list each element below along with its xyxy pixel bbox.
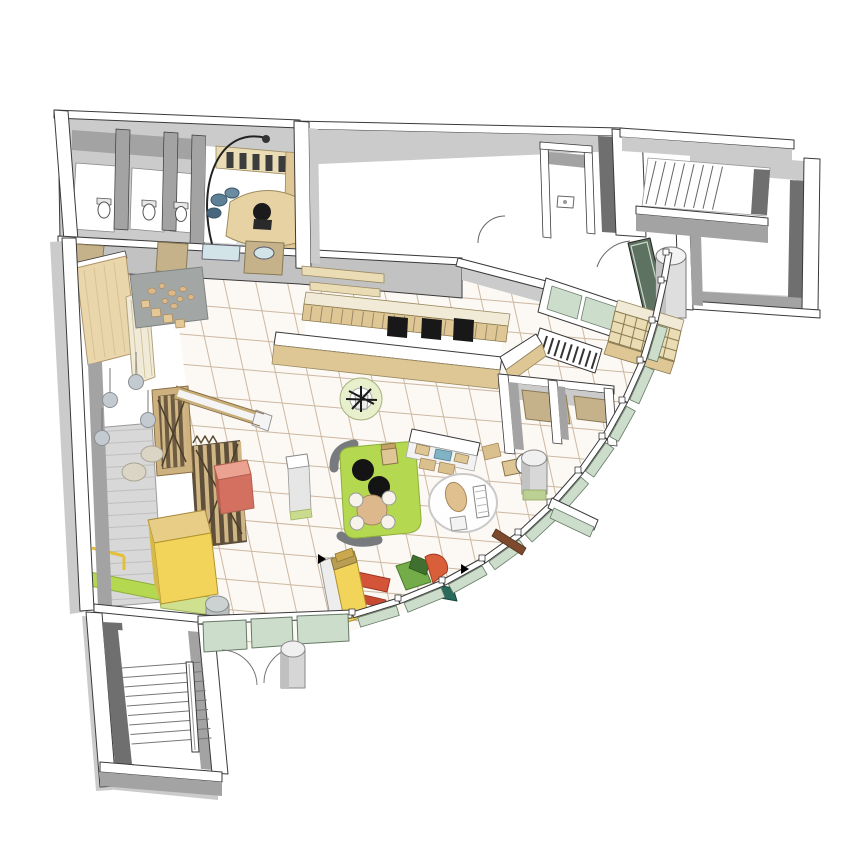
facade-column-base xyxy=(523,490,546,500)
floor-plan-svg xyxy=(0,0,851,845)
facade-post xyxy=(439,577,445,583)
entry-glass-3 xyxy=(297,614,349,644)
toilet-bowl-2 xyxy=(143,204,155,220)
facade-post xyxy=(599,433,605,439)
pink-cube-front xyxy=(218,474,254,514)
closet-door-arc xyxy=(478,216,505,243)
kids-chair-3 xyxy=(350,516,364,530)
facade-column-top xyxy=(522,450,547,466)
step-stone-4 xyxy=(175,319,185,328)
facade-post xyxy=(619,397,625,403)
step-stone-2 xyxy=(151,308,161,317)
reception-chair-3 xyxy=(453,318,474,342)
facade-post xyxy=(658,277,664,283)
mat-pouf-1 xyxy=(352,459,374,481)
kids-chair-2 xyxy=(382,491,396,505)
closet-sink-knob xyxy=(563,200,567,204)
tr-stub-face xyxy=(690,232,703,306)
pebble-4 xyxy=(180,287,187,292)
trash-bin-top xyxy=(206,596,229,612)
entry-door-arc-1 xyxy=(222,650,257,685)
closet-face xyxy=(548,152,586,168)
office-pot-2 xyxy=(225,188,239,198)
facade-post xyxy=(649,317,655,323)
step-stone-3 xyxy=(163,314,173,323)
rug-stool xyxy=(450,516,467,531)
upper-stairs-floor xyxy=(642,158,770,216)
pebble-5 xyxy=(177,297,183,302)
pebble-3 xyxy=(168,290,176,296)
office-desk-chair xyxy=(253,203,271,221)
pebble-7 xyxy=(162,299,168,304)
facade-post xyxy=(479,555,485,561)
toilet-bowl-3 xyxy=(176,207,187,222)
kids-chair-1 xyxy=(349,493,363,507)
facade-post xyxy=(575,467,581,473)
porthole-window xyxy=(254,247,274,259)
pebble-1 xyxy=(148,288,156,294)
facade-post xyxy=(349,609,355,615)
tr-right-wall xyxy=(802,158,820,310)
pendant-lamp-2 xyxy=(129,375,144,390)
floor-plan-canvas xyxy=(0,0,851,845)
office-pot-3 xyxy=(207,208,221,218)
pebble-6 xyxy=(188,295,194,300)
stall-divider-3 xyxy=(190,135,206,249)
closet-right-wall xyxy=(584,146,595,234)
upper-stairs-dark-face xyxy=(751,169,770,215)
kids-chair-4 xyxy=(381,515,395,529)
toilet-bowl-1 xyxy=(98,202,110,218)
wicker-pouf-2 xyxy=(141,446,163,462)
stall-floor-2 xyxy=(130,168,166,232)
facade-post xyxy=(395,595,401,601)
pedestal-body xyxy=(288,466,311,512)
right-door-arc xyxy=(597,241,630,267)
pendant-lamp-1 xyxy=(103,393,118,408)
reception-chair-1 xyxy=(387,316,408,338)
corridor-door-2 xyxy=(156,242,188,273)
reception-chair-2 xyxy=(421,318,442,340)
pebble-2 xyxy=(159,284,165,289)
office-desk-chair-seat xyxy=(253,219,272,230)
small-room-door-2 xyxy=(574,396,609,423)
pendant-lamp-3 xyxy=(141,413,156,428)
pebble-8 xyxy=(171,304,178,309)
entry-glass-1 xyxy=(203,620,247,652)
highchair-seat xyxy=(381,448,398,465)
arc-lamp-head xyxy=(262,135,270,143)
pendant-lamp-4 xyxy=(95,431,110,446)
stall-divider-1 xyxy=(114,129,130,230)
yellow-house-front xyxy=(154,533,218,604)
facade-post xyxy=(637,357,643,363)
bigroom-left-wall xyxy=(294,121,311,269)
facade-post xyxy=(663,249,669,255)
facade-post xyxy=(515,529,521,535)
step-stone-1 xyxy=(141,300,150,308)
wicker-pouf-1 xyxy=(122,463,146,481)
office-pot-1 xyxy=(211,194,227,206)
entry-column-top xyxy=(281,641,305,657)
stall-floor-1 xyxy=(72,163,116,232)
corridor-window xyxy=(202,244,240,261)
